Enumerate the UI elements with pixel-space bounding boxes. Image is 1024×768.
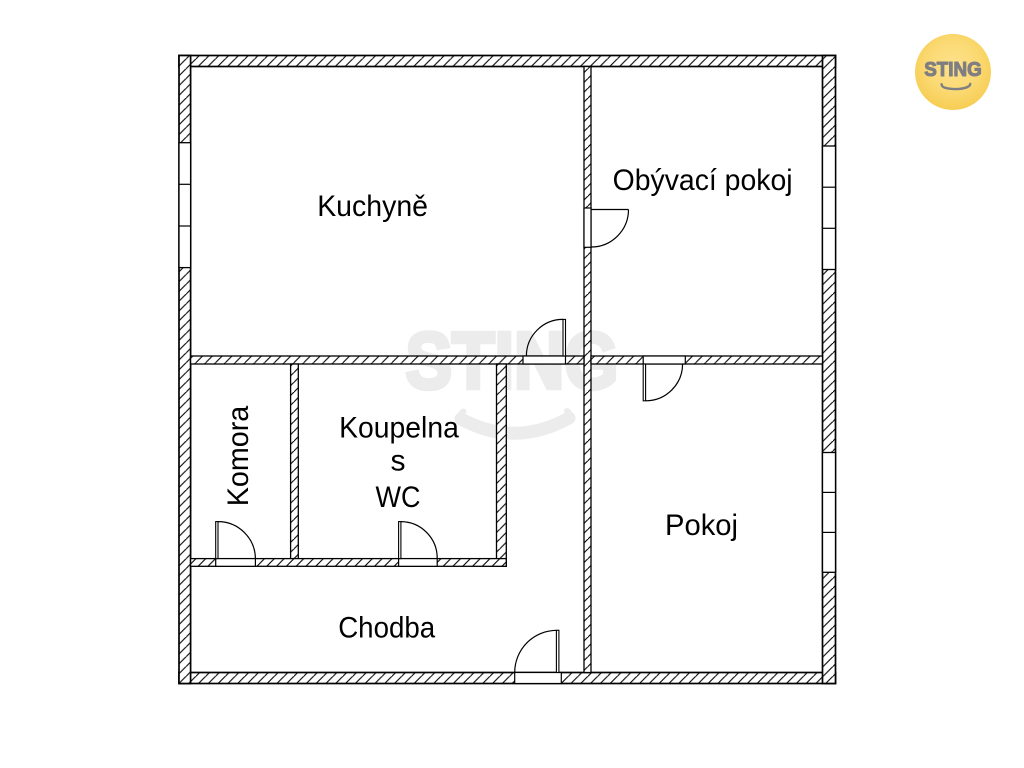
- svg-text:WC: WC: [376, 481, 421, 514]
- svg-text:Kuchyně: Kuchyně: [317, 190, 428, 223]
- svg-text:Chodba: Chodba: [338, 611, 435, 644]
- svg-text:STING: STING: [924, 59, 982, 81]
- svg-text:Koupelna: Koupelna: [339, 411, 459, 444]
- svg-text:Obývací pokoj: Obývací pokoj: [613, 164, 793, 197]
- svg-text:s: s: [391, 445, 406, 478]
- svg-text:Komora: Komora: [222, 405, 255, 506]
- svg-text:Pokoj: Pokoj: [665, 509, 738, 542]
